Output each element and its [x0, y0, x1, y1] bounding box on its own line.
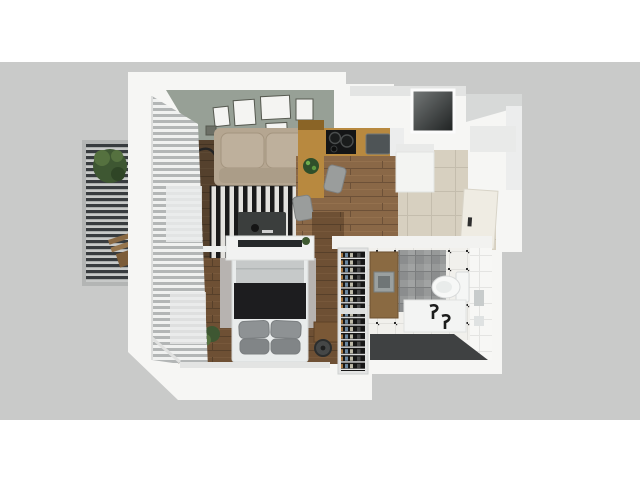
cooktop [326, 130, 356, 154]
balcony-plant [93, 149, 127, 183]
cabinet-top [298, 120, 324, 130]
bath-counter [404, 300, 466, 332]
bathroom-top-wall [332, 236, 492, 249]
shoe-cabinet-top [396, 144, 434, 152]
towel [474, 290, 484, 306]
fruit [312, 166, 316, 170]
window-pane [170, 292, 206, 344]
wood-vanity [370, 252, 398, 318]
toilet-paper [474, 316, 484, 326]
tv [238, 240, 302, 247]
closet-top [470, 126, 516, 152]
shoe-cabinet [396, 152, 434, 192]
bookshelf [338, 248, 368, 374]
bedside-table [314, 322, 338, 342]
bed-blanket [234, 283, 306, 319]
speaker-center [321, 346, 326, 351]
console-plant [302, 237, 310, 245]
shelf-divider [341, 308, 365, 314]
floorplan-canvas [0, 0, 640, 480]
floorplan-render [0, 0, 640, 480]
window-pane [166, 186, 202, 242]
bed [232, 246, 308, 362]
door-handle [467, 217, 472, 226]
dining-chair [292, 195, 314, 222]
kitchen-sink [366, 134, 390, 154]
ventilation-shaft [412, 90, 454, 132]
bottom-wall-cap [180, 362, 330, 368]
fruit-bowl [303, 158, 319, 174]
fruit [306, 161, 310, 165]
